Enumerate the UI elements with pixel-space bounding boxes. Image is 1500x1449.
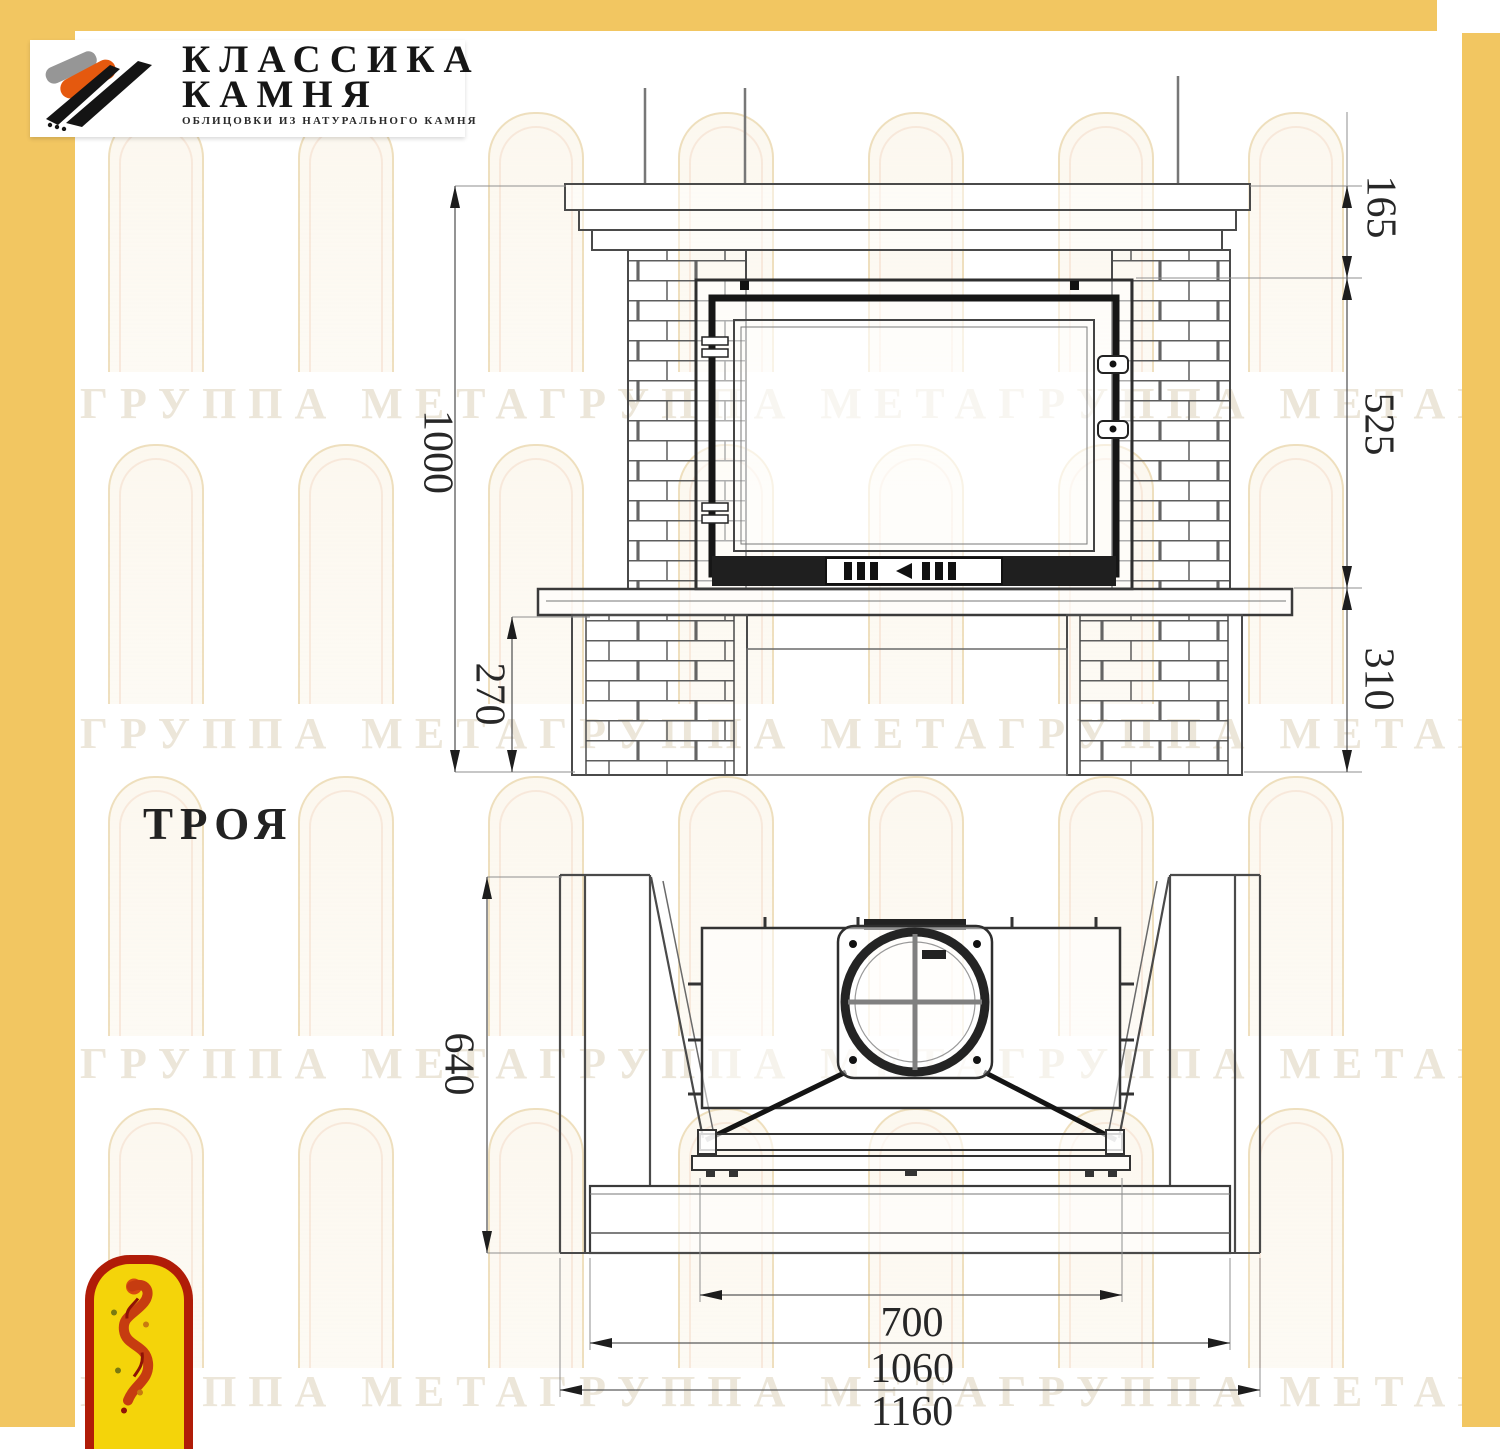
dim-plinth-height: 270 <box>466 663 512 726</box>
firebird-figure-icon <box>94 1264 166 1431</box>
logo-subtitle: ОБЛИЦОВКИ ИЗ НАТУРАЛЬНОГО КАМНЯ <box>182 115 462 127</box>
frame-bar-right <box>1462 33 1500 1427</box>
meta-emblem <box>85 1255 193 1449</box>
logo-text: КЛАССИКА КАМНЯ ОБЛИЦОВКИ ИЗ НАТУРАЛЬНОГО… <box>182 42 462 127</box>
watermark-arch <box>298 776 394 1036</box>
hearth-shelf <box>538 589 1292 615</box>
watermark-arch <box>108 112 204 372</box>
dim-overall-width: 1160 <box>871 1389 953 1427</box>
top-view-drawing: 640 700 1060 1160 <box>420 850 1480 1427</box>
logo-title-line2: КАМНЯ <box>182 77 462 112</box>
flue-collar <box>838 926 992 1078</box>
firebox-insert <box>696 280 1132 589</box>
logo-title-line1: КЛАССИКА <box>182 42 462 77</box>
mantel-shelf <box>565 184 1250 250</box>
dim-overall-height: 1000 <box>414 410 460 494</box>
dim-mantel-to-opening: 165 <box>1357 176 1403 239</box>
chimney-lines <box>645 76 1178 184</box>
dim-hearth-zone-height: 310 <box>1355 648 1401 711</box>
catalog-page: { "logo": { "line1": "КЛАССИКА", "line2"… <box>0 0 1500 1427</box>
dim-depth: 640 <box>435 1033 481 1096</box>
dim-opening-height: 525 <box>1355 393 1401 456</box>
hearth-plan <box>560 1186 1260 1253</box>
model-title: ТРОЯ <box>143 798 294 850</box>
frame-band-top <box>0 0 1437 31</box>
base-pedestals <box>572 615 1242 775</box>
company-logo: КЛАССИКА КАМНЯ ОБЛИЦОВКИ ИЗ НАТУРАЛЬНОГО… <box>30 40 465 137</box>
logo-brushstroke-icon <box>40 45 166 131</box>
frame-bar-left <box>0 0 75 1427</box>
air-grille <box>826 558 1002 584</box>
watermark-arch <box>298 1108 394 1368</box>
glass-front-plan <box>692 1130 1130 1177</box>
dim-opening-width: 700 <box>881 1300 944 1346</box>
watermark-arch <box>108 444 204 704</box>
front-view-drawing: 1000 270 165 525 310 <box>380 60 1440 800</box>
dim-hearth-width: 1060 <box>870 1346 954 1392</box>
